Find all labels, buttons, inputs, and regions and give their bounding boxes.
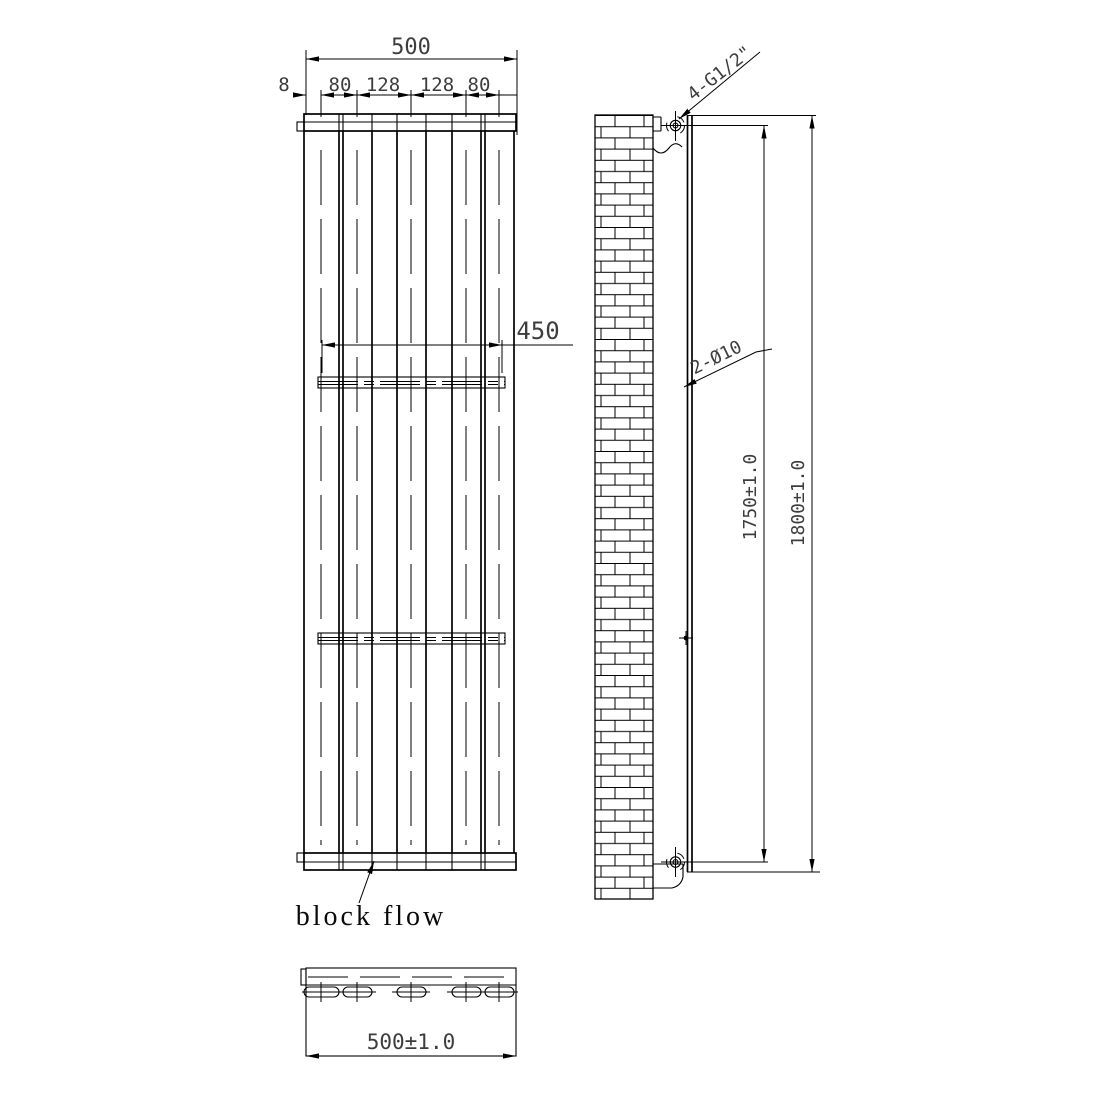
dim-spacing-1: 80: [329, 74, 352, 96]
dim-overall-height-group: 1800±1.0: [788, 116, 812, 873]
hole-annotation: 2-Ø10: [684, 336, 772, 387]
dim-bracket-span: 450: [516, 317, 559, 345]
dim-port-distance: 1750±1.0: [740, 454, 761, 541]
wall-bracket-top: [653, 117, 682, 153]
connection-annotation: 4-G1/2": [679, 42, 760, 119]
dim-overall-height: 1800±1.0: [788, 460, 809, 547]
dim-bracket-span-group: 450: [322, 317, 573, 373]
radiator-top-header: [297, 114, 516, 131]
block-flow-annotation: block flow: [296, 861, 447, 932]
dim-spacings-group: 8 80 128 128 80: [278, 74, 517, 117]
radiator-bottom-header: [297, 853, 516, 870]
front-view: 500 8 80 128 128 80: [278, 35, 573, 932]
dim-bottom-width: 500±1.0: [367, 1030, 456, 1054]
radiator-panels: [304, 131, 514, 853]
side-view: 4-G1/2" 2-Ø10 1750±1.0 1800±1.0: [595, 42, 820, 899]
hole-label: 2-Ø10: [687, 336, 745, 379]
dim-bottom-width-group: 500±1.0: [306, 1030, 516, 1056]
bottom-view: 500±1.0: [301, 968, 518, 1056]
dim-overall-width: 500: [391, 35, 431, 60]
dim-spacing-2: 128: [366, 74, 400, 96]
dim-port-distance-group: 1750±1.0: [740, 126, 764, 863]
connection-label: 4-G1/2": [683, 42, 756, 105]
technical-drawing-canvas: 500 8 80 128 128 80: [0, 0, 1100, 1100]
dim-spacing-3: 128: [420, 74, 454, 96]
dim-spacing-4: 80: [468, 74, 491, 96]
dim-left-offset: 8: [278, 74, 289, 96]
brick-wall: [595, 115, 653, 899]
block-flow-label: block flow: [296, 901, 447, 932]
mounting-hole-mark: [679, 631, 693, 645]
